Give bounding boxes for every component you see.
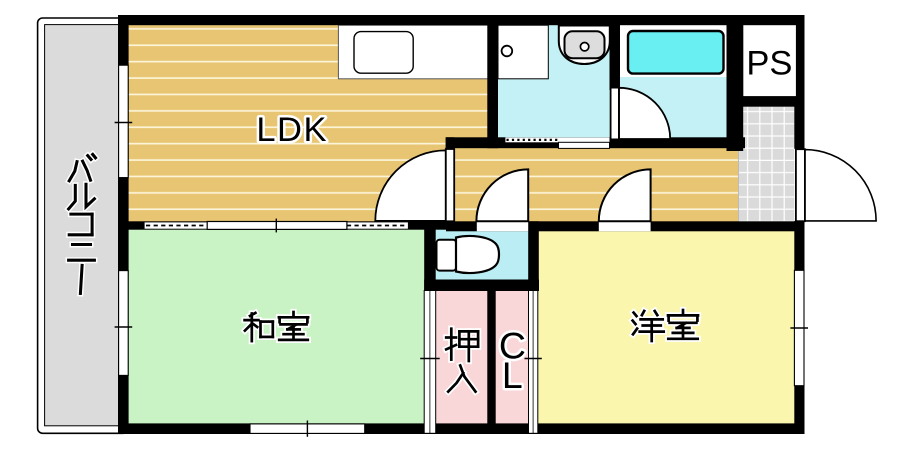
svg-text:L: L xyxy=(502,354,523,396)
svg-text:LDK: LDK xyxy=(256,111,328,149)
svg-text:PS: PS xyxy=(746,45,792,83)
